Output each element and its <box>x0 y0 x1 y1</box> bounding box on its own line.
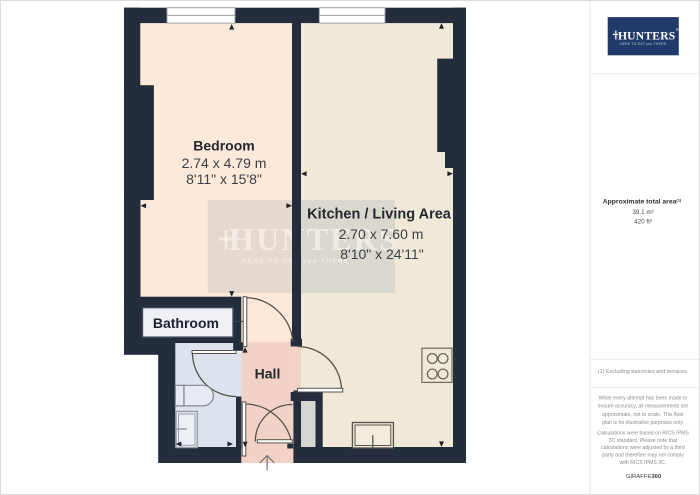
svg-text:420 ft²: 420 ft² <box>634 219 652 226</box>
svg-text:calculations were adjusted by: calculations were adjusted by a third <box>601 445 685 451</box>
svg-text:39.1 m²: 39.1 m² <box>632 209 653 216</box>
svg-text:plan is for illustrative purpo: plan is for illustrative purposes only. <box>602 420 684 426</box>
svg-text:Calculations were based on RIC: Calculations were based on RICS IPMS <box>597 430 689 436</box>
svg-text:2.74 x 4.79 m: 2.74 x 4.79 m <box>182 155 267 171</box>
svg-text:HUNTERS: HUNTERS <box>618 29 675 42</box>
svg-text:party and therefore may not co: party and therefore may not comply <box>602 453 684 459</box>
svg-text:8'10" x 24'11": 8'10" x 24'11" <box>340 246 424 262</box>
svg-text:While every attempt has been m: While every attempt has been made to <box>599 395 688 401</box>
svg-text:GIRAFFE360: GIRAFFE360 <box>626 474 662 480</box>
svg-text:ensure accuracy, all measureme: ensure accuracy, all measurements are <box>598 404 689 410</box>
svg-text:Bathroom: Bathroom <box>153 315 219 331</box>
svg-text:®: ® <box>676 28 679 32</box>
svg-text:2.70 x 7.60 m: 2.70 x 7.60 m <box>339 226 424 242</box>
svg-text:approximate, not to scale. Thi: approximate, not to scale. This floor <box>602 412 684 418</box>
svg-text:HERE TO GET you THERE: HERE TO GET you THERE <box>620 42 667 46</box>
svg-text:Kitchen / Living Area: Kitchen / Living Area <box>307 207 452 223</box>
svg-text:Hall: Hall <box>255 366 281 382</box>
svg-text:(1) Excluding balconies and te: (1) Excluding balconies and terraces. <box>598 369 689 375</box>
svg-text:with RICS IPMS 3C.: with RICS IPMS 3C. <box>620 460 667 466</box>
svg-text:Approximate total area(1): Approximate total area(1) <box>603 198 682 206</box>
svg-text:3C standard. Please note that: 3C standard. Please note that <box>609 438 678 444</box>
svg-text:8'11" x 15'8": 8'11" x 15'8" <box>186 171 262 187</box>
svg-text:Bedroom: Bedroom <box>193 138 254 154</box>
